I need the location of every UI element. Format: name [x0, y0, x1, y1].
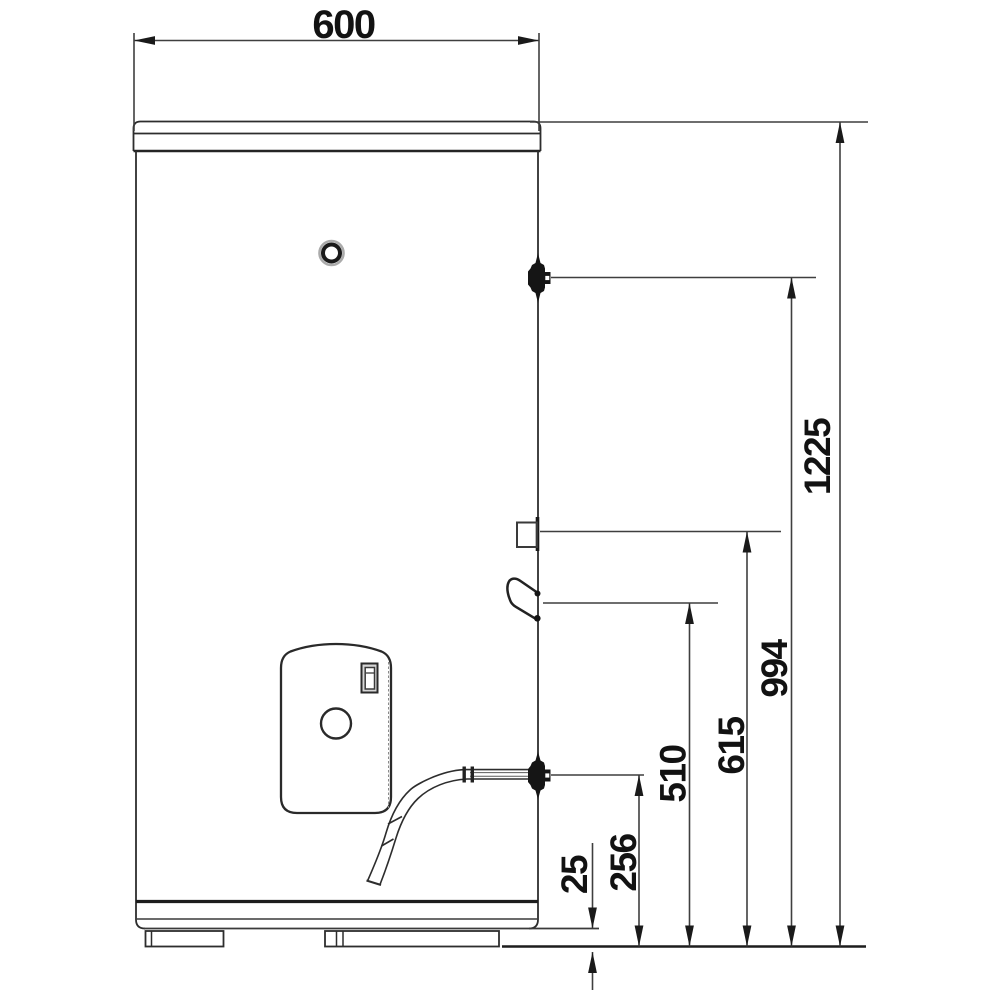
svg-text:510: 510 [653, 744, 694, 802]
svg-text:615: 615 [711, 716, 752, 774]
svg-text:256: 256 [603, 833, 644, 891]
svg-text:25: 25 [554, 855, 595, 894]
svg-text:994: 994 [754, 638, 795, 697]
svg-text:1225: 1225 [797, 418, 838, 495]
